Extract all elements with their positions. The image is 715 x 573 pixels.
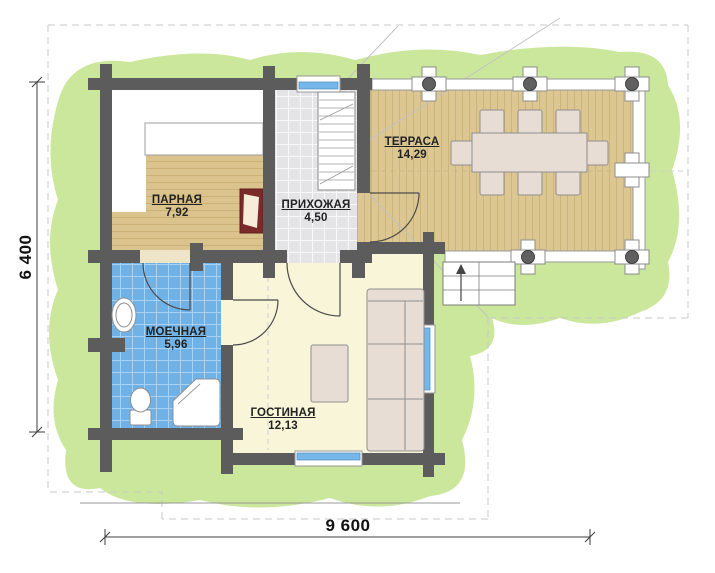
sauna-bench [145,123,263,155]
wall-segment [221,453,297,465]
room-label-washroom: МОЕЧНАЯ 5,96 [106,326,246,352]
log-column [626,251,639,264]
wall-segment [423,392,434,453]
log-stub [190,243,203,271]
dimension-height-label: 6 400 [16,197,36,317]
chair [480,110,504,134]
log-column [423,78,436,91]
room-label-living-room: ГОСТИНАЯ 12,13 [213,407,353,433]
wall-segment [88,250,140,263]
log-stub [423,465,434,477]
chair [480,171,504,195]
wall-segment [100,64,112,472]
chair [518,110,542,134]
room-label-steam-room: ПАРНАЯ 7,92 [107,194,247,220]
floor-plan-drawing [0,0,715,573]
chair [518,171,542,195]
room-name: МОЕЧНАЯ [146,326,207,338]
wall-segment [221,250,233,300]
log-column [626,78,639,91]
sink-basin [116,303,132,327]
log-stub [423,232,434,242]
room-area: 14,29 [397,149,427,161]
wall-segment [357,64,370,193]
room-label-terrace: ТЕРРАСА 14,29 [342,136,482,162]
log-stub [352,263,365,278]
door-threshold [140,250,190,263]
room-area: 5,96 [164,339,187,351]
room-label-hallway: ПРИХОЖАЯ 4,50 [246,199,386,225]
wall-segment [190,250,287,263]
window [295,451,362,466]
room-name: ТЕРРАСА [385,136,440,148]
wall-segment [423,254,434,327]
room-area: 4,50 [304,212,327,224]
wall-segment [357,242,445,254]
room-name: ПРИХОЖАЯ [282,199,351,211]
log-column [524,78,537,91]
chair [586,141,608,165]
chair [556,171,580,195]
chair [556,110,580,134]
coffee-table [311,345,348,402]
room-area: 7,92 [165,207,188,219]
room-area: 12,13 [268,420,298,432]
dining-table [472,133,587,172]
dimension-width-label: 9 600 [288,516,408,536]
floor-plan-page: ПАРНАЯ 7,92 ПРИХОЖАЯ 4,50 ТЕРРАСА 14,29 … [0,0,715,573]
window [297,76,340,92]
toilet-bowl [131,388,151,412]
door-threshold [287,250,340,263]
wall-segment [360,453,445,465]
terrace-steps [443,262,515,305]
room-name: ГОСТИНАЯ [250,407,315,419]
sofa [367,289,424,451]
room-name: ПАРНАЯ [152,194,202,206]
wall-segment [263,66,275,278]
log-column [522,251,535,264]
